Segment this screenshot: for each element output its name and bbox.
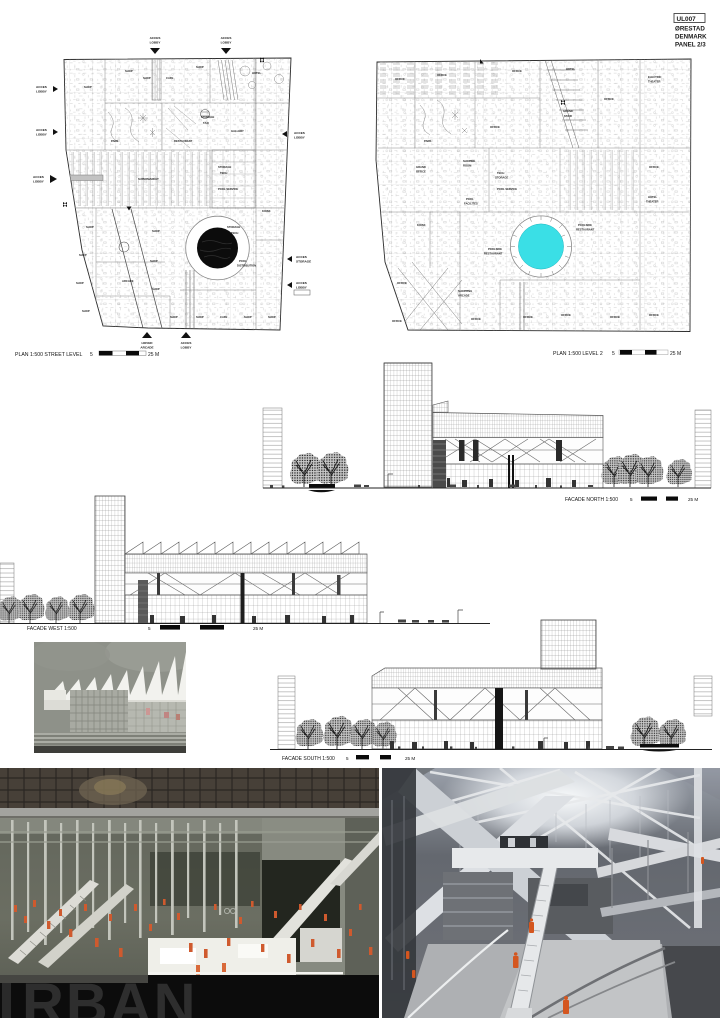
svg-text:ACCES: ACCES: [36, 85, 47, 89]
svg-text:CAFE: CAFE: [166, 76, 174, 80]
svg-text:OFFICE: OFFICE: [610, 315, 620, 319]
svg-text:GRAND: GRAND: [563, 109, 573, 113]
svg-text:POOL: POOL: [239, 259, 247, 263]
svg-text:5: 5: [148, 626, 151, 631]
svg-text:SHOP: SHOP: [152, 287, 160, 291]
svg-text:LOBBY: LOBBY: [36, 90, 48, 94]
svg-text:ACCES: ACCES: [296, 255, 307, 259]
svg-text:OFFICE: OFFICE: [604, 97, 614, 101]
svg-text:ROOM: ROOM: [463, 164, 472, 168]
svg-text:RESTAURANT: RESTAURANT: [576, 228, 595, 232]
svg-text:TECH: TECH: [220, 171, 227, 175]
svg-text:SHOP: SHOP: [170, 315, 178, 319]
svg-text:POOL SERVICE: POOL SERVICE: [497, 187, 517, 191]
svg-text:THEATER: THEATER: [648, 80, 661, 84]
svg-text:5: 5: [346, 756, 349, 761]
svg-text:5: 5: [612, 351, 615, 357]
svg-text:25 M: 25 M: [670, 351, 681, 357]
svg-text:FACADE SOUTH 1:500: FACADE SOUTH 1:500: [282, 756, 335, 762]
svg-text:HOTEL: HOTEL: [252, 71, 261, 75]
svg-text:ARCADE: ARCADE: [122, 279, 134, 283]
svg-text:FACILITES: FACILITES: [464, 202, 478, 206]
svg-text:FACADE NORTH 1:500: FACADE NORTH 1:500: [565, 497, 618, 503]
svg-text:HOTEL: HOTEL: [648, 195, 657, 199]
svg-text:SHOP: SHOP: [268, 315, 276, 319]
svg-text:FACADE WEST 1:500: FACADE WEST 1:500: [27, 626, 77, 632]
svg-text:GALLERY: GALLERY: [231, 129, 244, 133]
svg-text:OFFICE: OFFICE: [523, 315, 533, 319]
svg-text:SHOP: SHOP: [152, 229, 160, 233]
svg-text:SHOP: SHOP: [76, 281, 84, 285]
svg-text:STORAGE: STORAGE: [296, 260, 311, 264]
svg-text:SHOP: SHOP: [150, 259, 158, 263]
svg-text:THEATER: THEATER: [646, 200, 659, 204]
svg-text:TAXI: TAXI: [203, 121, 209, 125]
svg-text:OFFICE: OFFICE: [471, 317, 481, 321]
svg-text:TECH: TECH: [231, 231, 238, 235]
svg-text:OFFICE: OFFICE: [561, 313, 571, 317]
svg-text:OFFICE: OFFICE: [397, 281, 407, 285]
svg-text:UL007: UL007: [677, 16, 697, 23]
svg-text:GRAND: GRAND: [416, 165, 426, 169]
svg-text:RESTAURANT: RESTAURANT: [174, 139, 193, 143]
svg-text:SHOP: SHOP: [84, 85, 92, 89]
svg-text:SHOP: SHOP: [143, 76, 151, 80]
svg-text:OFFICE: OFFICE: [437, 73, 447, 77]
svg-text:SUPERMARKET: SUPERMARKET: [138, 177, 159, 181]
svg-text:STORAGE: STORAGE: [495, 176, 508, 180]
svg-text:LOBBY: LOBBY: [150, 41, 162, 45]
svg-text:TECH: TECH: [497, 171, 504, 175]
svg-text:POOLSIDE: POOLSIDE: [488, 247, 502, 251]
svg-text:DISTRIBUTION: DISTRIBUTION: [237, 264, 256, 268]
svg-text:PLAN 1:500 LEVEL 2: PLAN 1:500 LEVEL 2: [553, 351, 603, 357]
svg-text:ACCES: ACCES: [150, 36, 161, 40]
svg-text:SHOP: SHOP: [196, 65, 204, 69]
svg-text:PLAN 1:500 STREET LEVEL: PLAN 1:500 STREET LEVEL: [15, 352, 82, 358]
svg-text:SHOP: SHOP: [79, 253, 87, 257]
svg-text:ACCES: ACCES: [294, 131, 305, 135]
svg-text:ELECTRIC: ELECTRIC: [648, 75, 661, 79]
svg-text:STORAGE: STORAGE: [218, 165, 231, 169]
svg-text:LOBBY: LOBBY: [294, 136, 306, 140]
svg-text:SHOP: SHOP: [82, 309, 90, 313]
svg-text:ØRESTAD: ØRESTAD: [675, 26, 705, 33]
svg-text:SHOP: SHOP: [86, 225, 94, 229]
svg-text:5: 5: [90, 352, 93, 358]
svg-text:KIOSK: KIOSK: [262, 209, 271, 213]
svg-text:PARK: PARK: [111, 139, 118, 143]
svg-text:LOBBY: LOBBY: [33, 180, 45, 184]
svg-text:25 M: 25 M: [253, 626, 263, 631]
svg-text:5: 5: [630, 497, 633, 502]
svg-text:LOBBY: LOBBY: [221, 41, 233, 45]
svg-text:LOBBY: LOBBY: [181, 346, 193, 350]
svg-text:OFFICE: OFFICE: [416, 170, 426, 174]
svg-text:ACCES: ACCES: [36, 128, 47, 132]
svg-text:ACCES: ACCES: [296, 281, 307, 285]
svg-text:POOL SERVICE: POOL SERVICE: [218, 187, 238, 191]
svg-text:OFFICE: OFFICE: [395, 77, 405, 81]
svg-text:CAFE: CAFE: [220, 315, 228, 319]
svg-text:POOL: POOL: [466, 197, 474, 201]
svg-text:LOBBY: LOBBY: [296, 286, 308, 290]
svg-text:STORAGE: STORAGE: [201, 115, 214, 119]
svg-text:SHOP: SHOP: [125, 69, 133, 73]
svg-text:OFFICE: OFFICE: [649, 165, 659, 169]
svg-text:OFFICE: OFFICE: [392, 319, 402, 323]
svg-text:RESTAURANT: RESTAURANT: [484, 252, 503, 256]
svg-text:ACCES: ACCES: [33, 175, 44, 179]
svg-text:PARK: PARK: [424, 139, 431, 143]
svg-text:STORAGE: STORAGE: [227, 225, 240, 229]
svg-text:LOBBY: LOBBY: [36, 133, 48, 137]
svg-text:POOLSIDE: POOLSIDE: [578, 223, 592, 227]
svg-text:ACCES: ACCES: [221, 36, 232, 40]
svg-text:SHOP: SHOP: [244, 315, 252, 319]
svg-text:25 M: 25 M: [688, 497, 698, 502]
svg-text:OFFICE: OFFICE: [649, 313, 659, 317]
svg-text:STAIR: STAIR: [564, 114, 572, 118]
svg-text:OFFICE: OFFICE: [490, 125, 500, 129]
svg-text:ARCADE: ARCADE: [458, 294, 470, 298]
svg-text:ACCES: ACCES: [181, 341, 192, 345]
svg-text:ARCADE: ARCADE: [140, 346, 153, 350]
svg-text:KIOSK: KIOSK: [417, 223, 426, 227]
svg-text:OFFICE: OFFICE: [512, 69, 522, 73]
svg-text:25 M: 25 M: [405, 756, 415, 761]
svg-text:HOTEL: HOTEL: [566, 67, 575, 71]
svg-text:PANEL 2/3: PANEL 2/3: [675, 42, 706, 49]
svg-text:HOVED: HOVED: [141, 341, 153, 345]
svg-text:DENMARK: DENMARK: [675, 34, 707, 41]
svg-text:SHOPING: SHOPING: [463, 159, 475, 163]
svg-text:SHOPPING: SHOPPING: [458, 289, 472, 293]
svg-text:SHOP: SHOP: [196, 315, 204, 319]
svg-text:25 M: 25 M: [148, 352, 159, 358]
